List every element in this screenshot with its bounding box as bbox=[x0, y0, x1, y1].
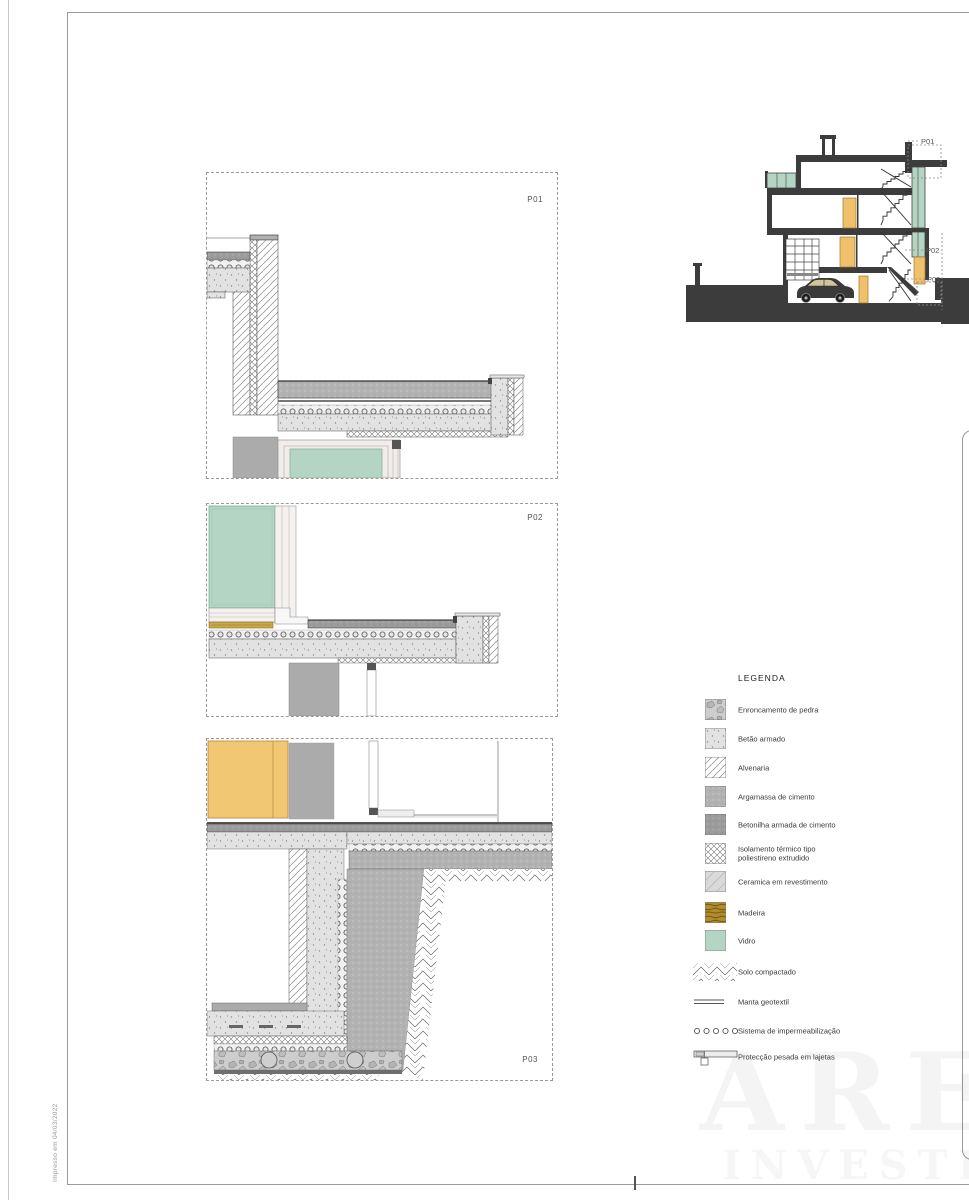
section-callout-p01: P01 bbox=[921, 137, 934, 146]
legend-item-solo: Solo compactado bbox=[688, 961, 969, 982]
detail-p01-label: P01 bbox=[527, 195, 543, 204]
legend-item-label: Madeira bbox=[738, 908, 765, 917]
car bbox=[797, 278, 854, 303]
building-section: P01 P02 P03 bbox=[683, 118, 969, 333]
print-date-note: Impresso em 04/03/2022 bbox=[52, 1103, 59, 1182]
legend-item-label: Protecção pesada em lajetas bbox=[738, 1052, 835, 1061]
legend-item-manta: Manta geotextil bbox=[688, 991, 969, 1012]
detail-p03-label: P03 bbox=[522, 1055, 538, 1064]
geotextile-lines-icon bbox=[693, 998, 725, 1006]
legend-swatch-concrete bbox=[705, 728, 726, 749]
detail-drawing-p02: P02 bbox=[206, 503, 558, 717]
legend-item-madeira: Madeira bbox=[688, 902, 969, 923]
legend-swatch-insulation bbox=[705, 843, 726, 864]
stair-glazing-upper bbox=[912, 167, 925, 228]
legend-item-label: Alvenaria bbox=[738, 763, 769, 772]
legend: LEGENDA Enroncamento de pedra Betão arma… bbox=[688, 668, 969, 1088]
legend-swatch-glass bbox=[705, 930, 726, 951]
legend-swatch-screed bbox=[705, 814, 726, 835]
trim-line bbox=[8, 0, 9, 1200]
terrace-glazing bbox=[767, 173, 796, 188]
legend-item-label: Betonilha armada de cimento bbox=[738, 820, 836, 829]
soil-hatch-icon bbox=[693, 963, 737, 981]
legend-item-enroncamento: Enroncamento de pedra bbox=[688, 699, 969, 720]
legend-item-sistema: Sistema de impermeabilização bbox=[688, 1020, 969, 1041]
legend-item-label: Manta geotextil bbox=[738, 997, 789, 1006]
legend-item-proteccao: Protecção pesada em lajetas bbox=[688, 1046, 969, 1067]
fold-tick bbox=[634, 1176, 636, 1190]
legend-item-betao: Betão armado bbox=[688, 728, 969, 749]
detail-drawing-p01: P01 bbox=[206, 172, 558, 479]
legend-item-alvenaria: Alvenaria bbox=[688, 757, 969, 778]
legend-item-label: Enroncamento de pedra bbox=[738, 705, 818, 714]
legend-item-betonilha: Betonilha armada de cimento bbox=[688, 814, 969, 835]
legend-swatch-mortar bbox=[705, 786, 726, 807]
paving-slab-icon bbox=[693, 1048, 739, 1066]
detail-drawing-p03: P03 bbox=[206, 738, 553, 1081]
stair-glazing-lower bbox=[912, 232, 925, 257]
legend-title: LEGENDA bbox=[738, 673, 786, 683]
legend-item-label: Vidro bbox=[738, 936, 755, 945]
legend-item-argamassa: Argamassa de cimento bbox=[688, 786, 969, 807]
legend-item-ceramica: Ceramica em revestimento bbox=[688, 871, 969, 892]
legend-item-label: Ceramica em revestimento bbox=[738, 877, 828, 886]
detail-p02-drawing bbox=[207, 504, 557, 716]
legend-swatch-masonry bbox=[705, 757, 726, 778]
drawing-sheet: { "sheet": { "print_note": "Impresso em … bbox=[0, 0, 969, 1200]
legend-item-isolamento: Isolamento térmico tipo poliestireno ext… bbox=[688, 843, 969, 864]
section-callout-p03: P03 bbox=[927, 275, 940, 284]
legend-item-label: Isolamento térmico tipo poliestireno ext… bbox=[738, 844, 816, 863]
building-section-drawing: P01 P02 P03 bbox=[683, 118, 969, 333]
legend-item-label: Argamassa de cimento bbox=[738, 792, 815, 801]
legend-item-label-line1: Isolamento térmico tipo bbox=[738, 844, 816, 853]
detail-p01-drawing bbox=[207, 173, 557, 478]
detail-p03-drawing bbox=[207, 739, 552, 1080]
legend-item-label-line2: poliestireno extrudido bbox=[738, 854, 809, 863]
legend-item-vidro: Vidro bbox=[688, 930, 969, 951]
legend-item-label: Betão armado bbox=[738, 734, 785, 743]
legend-swatch-ceramic bbox=[705, 871, 726, 892]
detail-p02-label: P02 bbox=[527, 513, 543, 522]
watermark-line2: INVESTIM bbox=[722, 1142, 969, 1189]
legend-swatch-stone bbox=[705, 699, 726, 720]
legend-item-label: Solo compactado bbox=[738, 967, 796, 976]
section-callout-p02: P02 bbox=[926, 246, 939, 255]
legend-item-label: Sistema de impermeabilização bbox=[738, 1026, 840, 1035]
legend-swatch-wood bbox=[705, 902, 726, 923]
waterproofing-circles-icon bbox=[693, 1026, 739, 1036]
kitchen-cabinets bbox=[786, 239, 819, 280]
